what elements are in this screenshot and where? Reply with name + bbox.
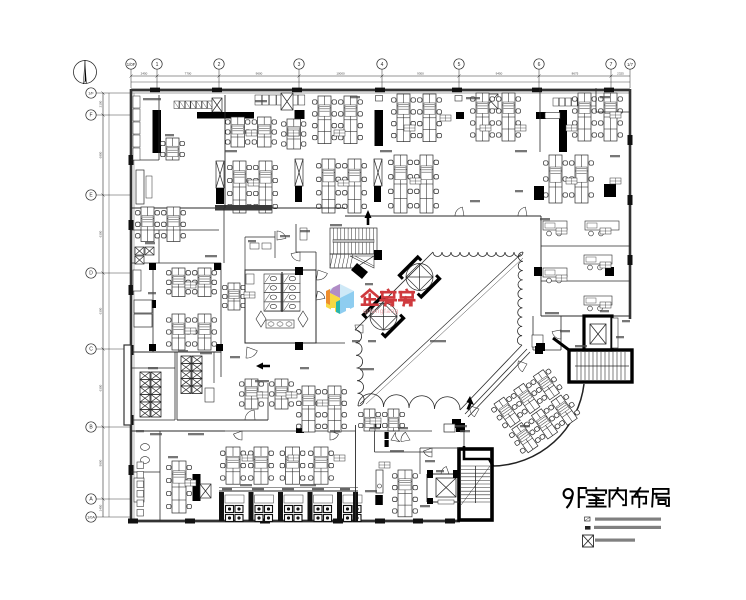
- svg-text:2100: 2100: [99, 100, 103, 107]
- svg-text:2450: 2450: [141, 72, 148, 76]
- svg-text:1/0A: 1/0A: [87, 516, 95, 520]
- svg-text:1: 1: [156, 62, 159, 68]
- svg-text:9450: 9450: [496, 72, 503, 76]
- svg-text:6300: 6300: [99, 230, 103, 237]
- svg-text:5800: 5800: [99, 459, 103, 466]
- svg-text:6300: 6300: [99, 307, 103, 314]
- svg-text:D: D: [89, 271, 93, 277]
- svg-text:10000: 10000: [336, 72, 345, 76]
- svg-text:7700: 7700: [185, 72, 192, 76]
- svg-text:9600: 9600: [256, 72, 263, 76]
- svg-text:2325: 2325: [617, 72, 624, 76]
- svg-text:2: 2: [218, 62, 221, 68]
- svg-text:9300: 9300: [417, 72, 424, 76]
- svg-text:8675: 8675: [572, 72, 579, 76]
- svg-text:1450: 1450: [99, 504, 103, 511]
- svg-text:7: 7: [610, 62, 613, 68]
- svg-text:6900: 6900: [99, 151, 103, 158]
- svg-text:5: 5: [458, 62, 461, 68]
- svg-text:C: C: [89, 347, 93, 353]
- svg-text:1/7: 1/7: [627, 62, 633, 67]
- svg-text:1/0F: 1/0F: [127, 62, 136, 67]
- svg-text:3: 3: [298, 62, 301, 68]
- svg-text:4: 4: [381, 62, 384, 68]
- svg-text:F: F: [89, 113, 92, 119]
- svg-text:qifangfang: qifangfang: [363, 308, 399, 315]
- svg-text:6: 6: [538, 62, 541, 68]
- svg-text:6300: 6300: [99, 384, 103, 391]
- svg-text:1/F: 1/F: [88, 92, 94, 96]
